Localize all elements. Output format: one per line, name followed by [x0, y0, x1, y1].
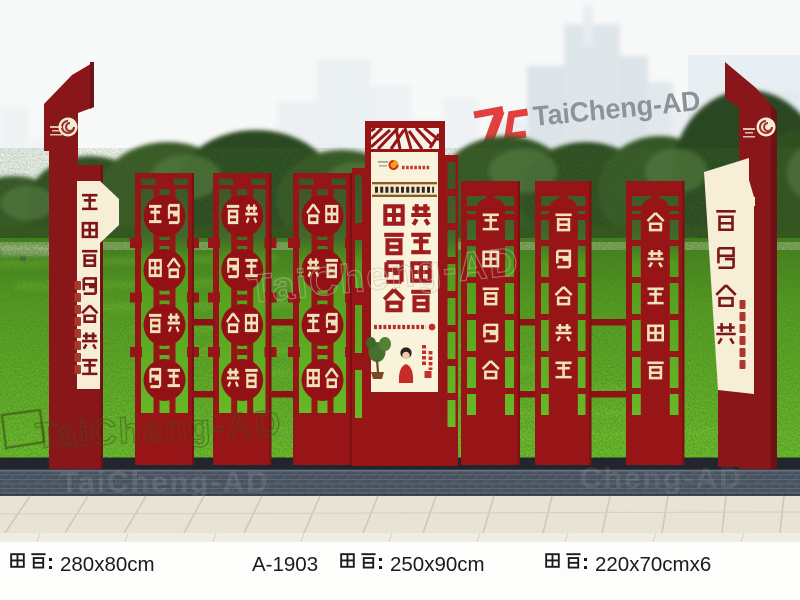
svg-text:220x70cmx6: 220x70cmx6	[595, 553, 711, 576]
svg-text:280x80cm: 280x80cm	[60, 553, 155, 576]
svg-text:A-1903: A-1903	[252, 553, 318, 576]
svg-text:Cheng-AD: Cheng-AD	[580, 462, 743, 495]
svg-text:TaiCheng-AD: TaiCheng-AD	[60, 466, 270, 499]
svg-text:250x90cm: 250x90cm	[390, 553, 485, 576]
